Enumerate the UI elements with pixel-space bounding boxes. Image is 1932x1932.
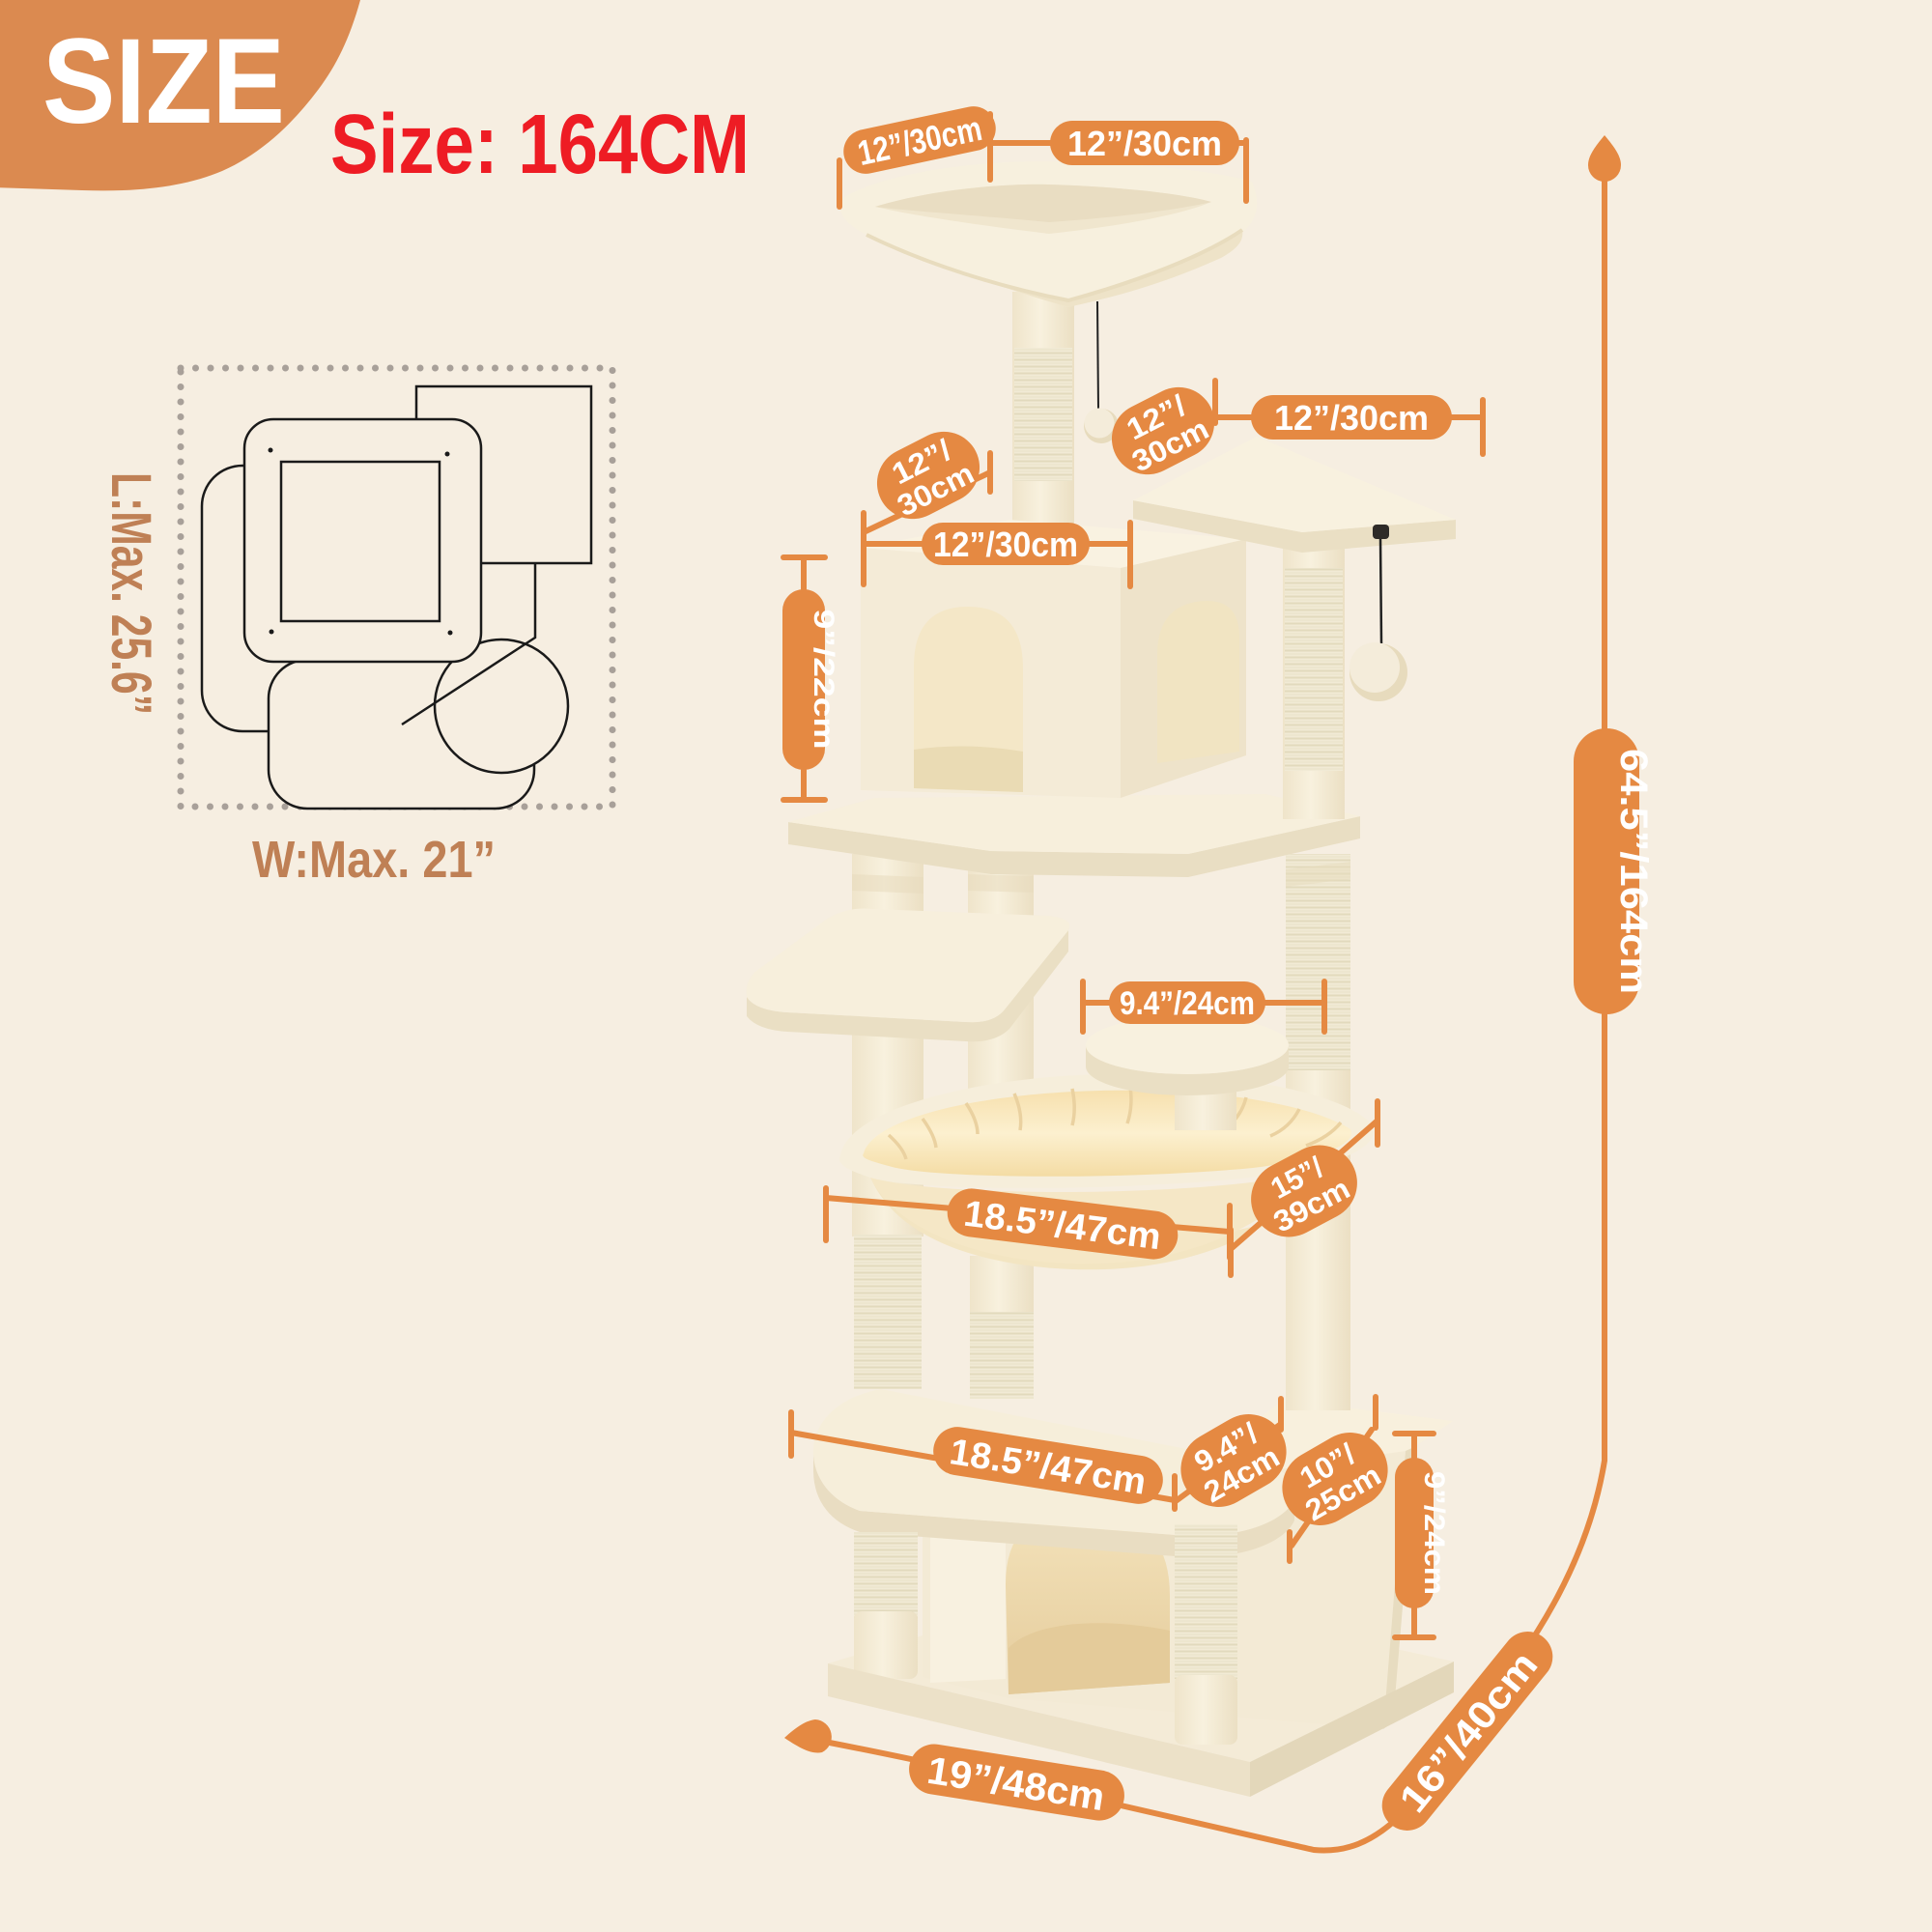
svg-text:12”/30cm: 12”/30cm xyxy=(1274,398,1429,438)
svg-text:9”/22cm: 9”/22cm xyxy=(808,610,839,750)
svg-text:9.4”/24cm: 9.4”/24cm xyxy=(1120,985,1255,1022)
svg-text:W:Max. 21”: W:Max. 21” xyxy=(252,831,496,889)
svg-text:SIZE: SIZE xyxy=(43,14,285,149)
svg-text:L:Max. 25.6”: L:Max. 25.6” xyxy=(99,472,162,715)
svg-text:12”/30cm: 12”/30cm xyxy=(933,525,1078,564)
svg-text:12”/30cm: 12”/30cm xyxy=(1067,124,1222,163)
svg-text:9”/24cm: 9”/24cm xyxy=(1418,1471,1450,1595)
svg-text:Size: 164CM: Size: 164CM xyxy=(330,98,750,191)
svg-text:64.5”/164cm: 64.5”/164cm xyxy=(1612,749,1655,994)
